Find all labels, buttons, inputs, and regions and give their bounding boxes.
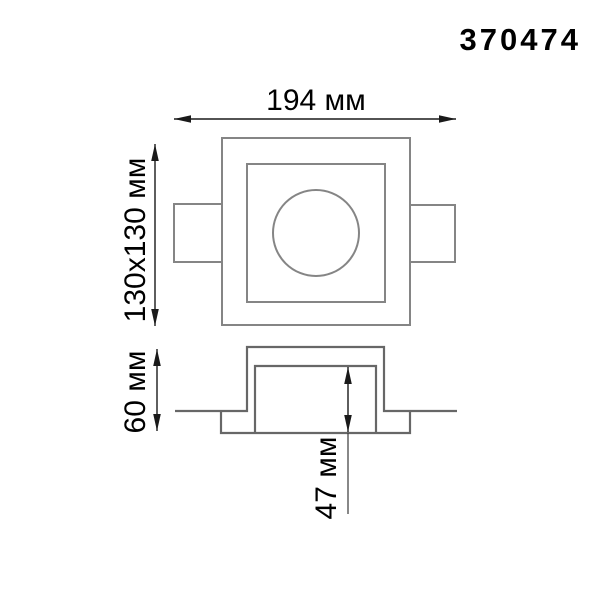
top-view-left-mounting-tab: [174, 204, 222, 262]
face-size-dimension-label: 130x130 мм: [119, 158, 152, 323]
height-dimension-label: 60 мм: [119, 351, 152, 434]
product-code: 370474: [460, 22, 581, 57]
drawing-canvas: 370474 194 мм 130x130 мм 60 мм: [0, 0, 600, 600]
top-view: [174, 138, 455, 325]
section-recess-outline: [255, 366, 376, 433]
depth-dimension-label: 47 мм: [310, 437, 343, 520]
top-view-right-mounting-tab: [410, 205, 455, 262]
top-view-outer-frame: [222, 138, 410, 325]
section-housing-outline: [175, 347, 457, 411]
width-dimension-label: 194 мм: [266, 84, 366, 117]
section-flange-outline: [221, 411, 410, 433]
technical-drawing: 370474 194 мм 130x130 мм 60 мм: [0, 0, 600, 600]
top-view-inner-frame: [247, 164, 385, 302]
section-view: [175, 347, 457, 433]
top-view-lamp-opening: [273, 190, 359, 276]
